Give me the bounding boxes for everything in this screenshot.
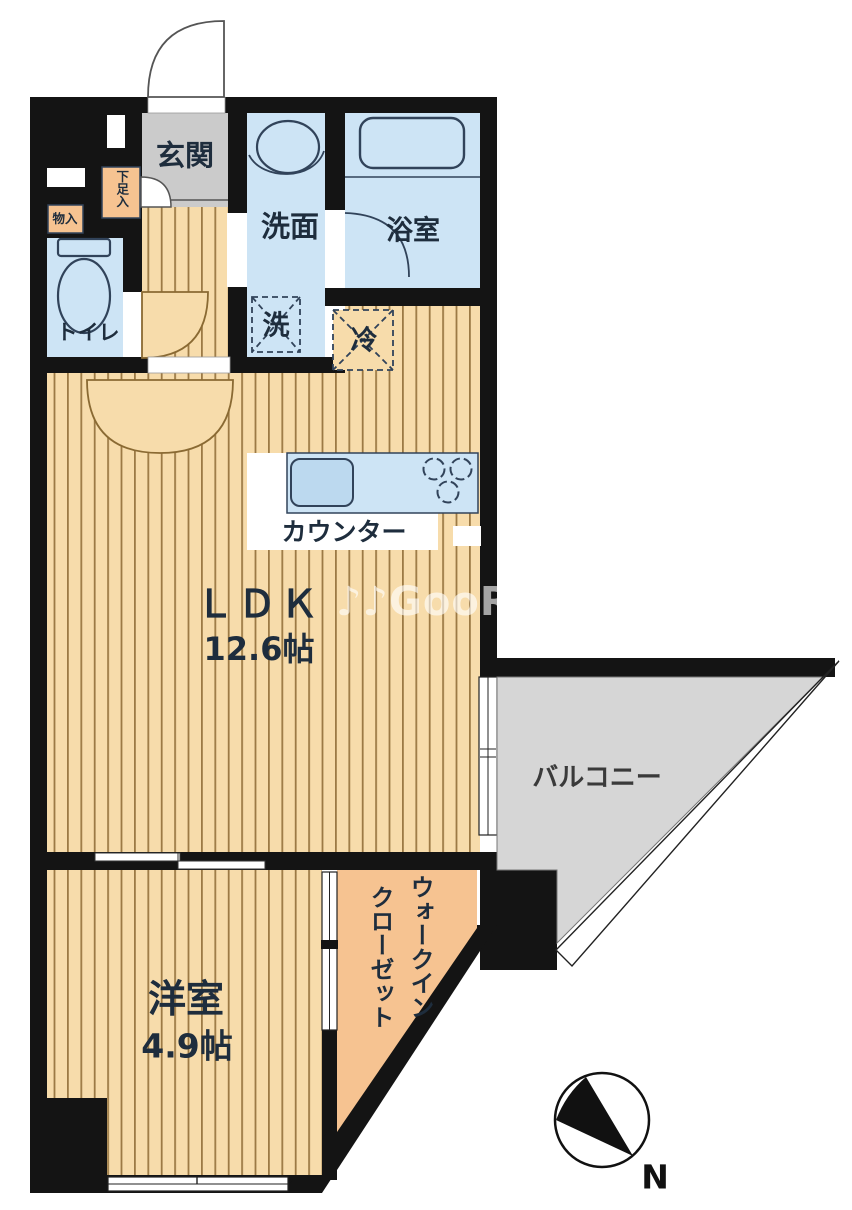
closet-sliding-door [321, 872, 338, 1030]
compass-north-label: N [641, 1161, 669, 1194]
washroom-label: 洗面 [261, 213, 319, 242]
western-room-size-label: 4.9帖 [141, 1030, 232, 1063]
kitchen-sink-icon [291, 459, 353, 506]
compass-icon [555, 1073, 649, 1167]
western-room-label: 洋室 [148, 980, 224, 1018]
counter-label: カウンター [281, 520, 406, 545]
entrance-door-icon [148, 21, 224, 97]
floor-plan: 玄関 下足入 物入 トイレ 洗面 浴室 洗 冷 カウンター ＬＤＫ 12.6帖 … [0, 0, 852, 1210]
genkan-label: 玄関 [156, 142, 214, 171]
ldk-label: ＬＤＫ [196, 585, 322, 623]
entrance-opening [148, 97, 225, 113]
wall-bottom-left-chunk [30, 1098, 107, 1193]
toilet-icon [58, 239, 110, 333]
storage-label: 物入 [52, 213, 77, 226]
watermark: ♪♪GooRooM [336, 582, 609, 622]
fridge-space-label: 冷 [351, 328, 378, 355]
walk-in-closet-label-line2: クローゼット [368, 885, 392, 1029]
shoe-storage-label: 下足入 [115, 170, 128, 208]
bathroom-label: 浴室 [386, 218, 440, 245]
counter-wall-niche [453, 526, 481, 546]
balcony-window [479, 677, 497, 835]
balcony-label: バルコニー [532, 765, 661, 791]
bathroom-floor [345, 113, 480, 288]
toilet-label: トイレ [57, 323, 120, 344]
bedroom-window [108, 1177, 288, 1191]
laundry-space-label: 洗 [263, 313, 290, 340]
walk-in-closet-label-line1: ウォークイン [408, 875, 432, 1019]
hall-threshold [148, 357, 230, 373]
ldk-size-label: 12.6帖 [204, 633, 315, 665]
